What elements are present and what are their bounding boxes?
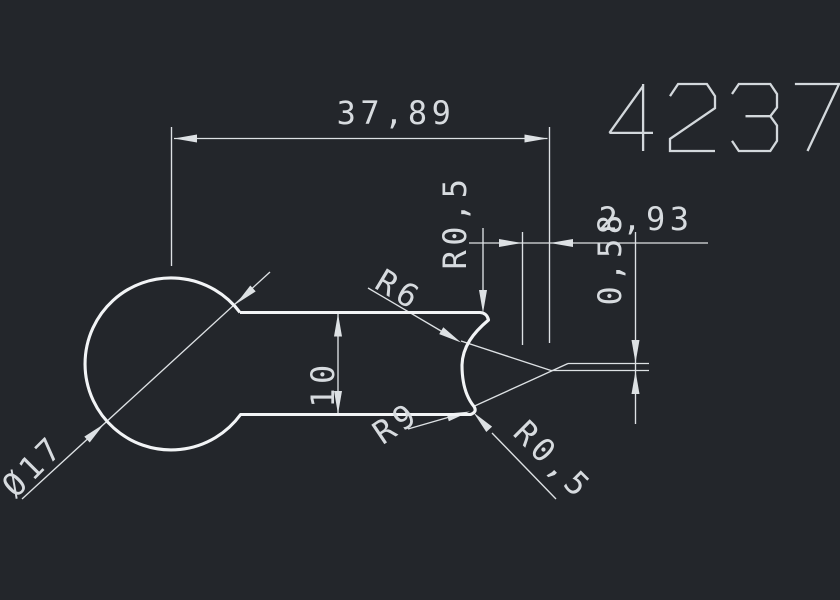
dim-text-r05-top: R0,5 bbox=[436, 174, 474, 269]
dim-text-37-89: 37,89 bbox=[337, 94, 456, 132]
dim-text-0-58: 0,58 bbox=[591, 210, 629, 305]
cad-canvas: 37,892,930,58R0,5R6R9R0,510Ø17 bbox=[0, 0, 840, 600]
cad-viewport: 4237 37,892,930,58R0,5R6R9R0,510Ø17 bbox=[0, 0, 840, 600]
dim-text-10: 10 bbox=[304, 360, 342, 408]
